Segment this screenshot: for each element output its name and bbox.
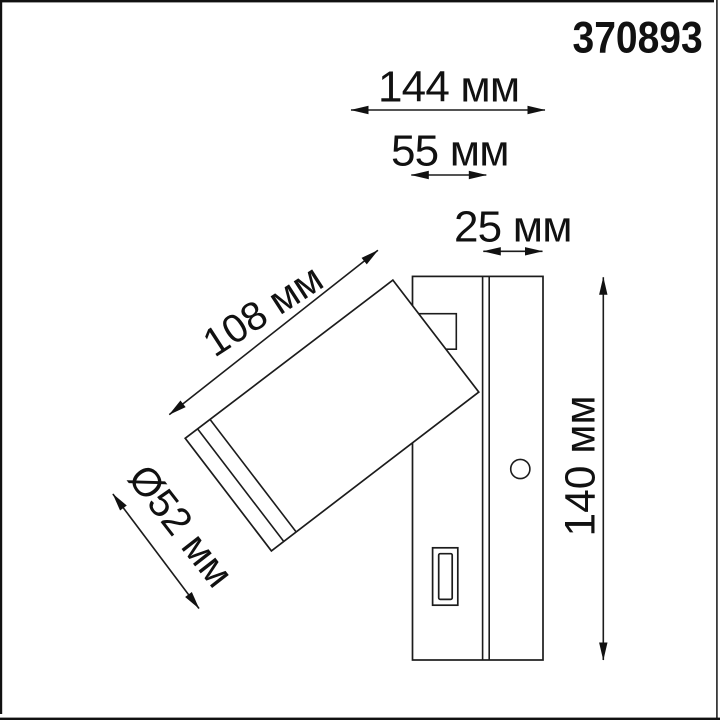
svg-text:370893: 370893 [573,12,703,62]
svg-text:25 мм: 25 мм [454,203,572,252]
svg-text:55 мм: 55 мм [391,127,509,176]
svg-text:140 мм: 140 мм [558,395,605,536]
svg-text:144 мм: 144 мм [378,63,519,112]
